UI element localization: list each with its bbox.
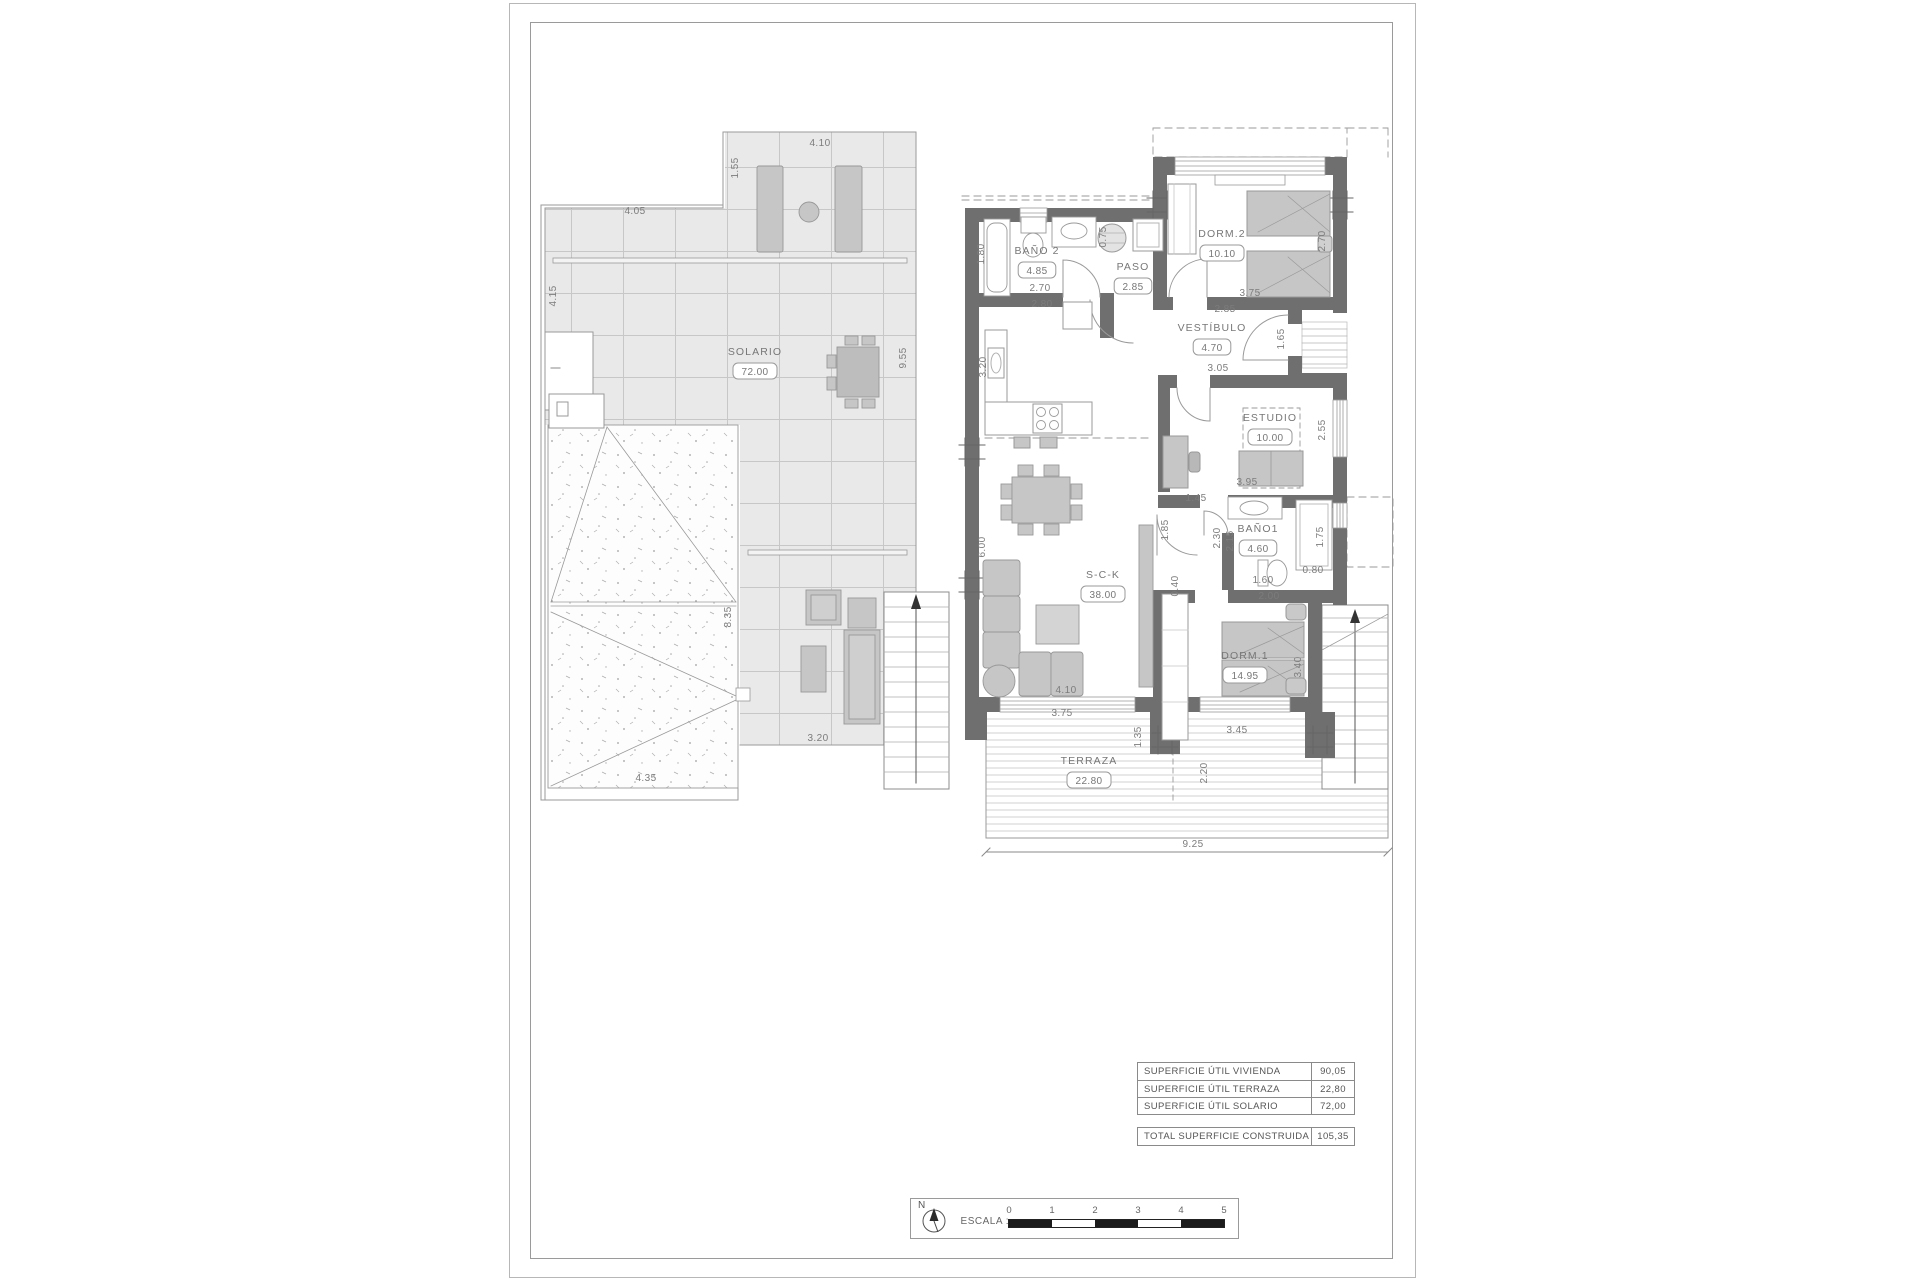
sofa: [983, 560, 1020, 596]
row-value: 105,35: [1311, 1128, 1354, 1145]
sofa: [1019, 652, 1051, 696]
bed: [1247, 191, 1330, 236]
room-area-label: 4.70: [1201, 343, 1222, 354]
dimension-label: 0.80: [1302, 565, 1323, 576]
external-staircase: [1322, 605, 1388, 789]
dimension-label: 2.85: [1214, 304, 1235, 315]
room-name-label: BAÑO1: [1237, 522, 1278, 535]
room-area-label: 4.60: [1247, 544, 1268, 555]
total-area-table: TOTAL SUPERFICIE CONSTRUIDA 105,35: [1137, 1127, 1355, 1146]
dimension-label: 6.00: [977, 536, 988, 557]
scale-tick: 2: [1092, 1205, 1097, 1216]
dimension-label: 3.75: [1239, 288, 1260, 299]
dining-table: [1012, 477, 1070, 523]
row-label: SUPERFICIE ÚTIL TERRAZA: [1138, 1084, 1311, 1095]
dimension-label: 3.20: [807, 733, 828, 744]
scale-tick: 1: [1049, 1205, 1054, 1216]
scale-tick: 3: [1135, 1205, 1140, 1216]
sideboard: [1139, 525, 1153, 687]
scale-label: ESCALA :: [953, 1216, 1009, 1227]
table-row: SUPERFICIE ÚTIL TERRAZA 22,80: [1138, 1080, 1354, 1097]
dimension-label: 1.35: [1133, 726, 1144, 747]
dimension-label: 2.20: [1199, 762, 1210, 783]
kitchen: [985, 302, 1092, 448]
room-area-label: 38.00: [1089, 590, 1116, 601]
row-value: 72,00: [1311, 1098, 1354, 1114]
stove: [1033, 404, 1062, 433]
dimension-label: 3.05: [1207, 363, 1228, 374]
wardrobe: [1168, 184, 1196, 254]
dimension-label: 3.40: [1293, 656, 1304, 677]
dimension-label: 3.95: [1236, 477, 1257, 488]
dimension-label: 1.80: [976, 243, 987, 264]
row-label: SUPERFICIE ÚTIL VIVIENDA: [1138, 1066, 1311, 1077]
door-estudio: [1177, 388, 1210, 421]
row-label: SUPERFICIE ÚTIL SOLARIO: [1138, 1101, 1311, 1112]
scale-segment: [1181, 1220, 1224, 1227]
door-dorm2: [1169, 259, 1207, 297]
roof-stipple-area: [548, 425, 738, 788]
room-name-label: TERRAZA: [1061, 755, 1118, 767]
dimension-label: 1.65: [1276, 328, 1287, 349]
toilet-tank: [1021, 217, 1046, 233]
living-dining-furniture: [983, 465, 1153, 697]
room-name-label: SOLARIO: [728, 346, 782, 358]
room-name-label: ESTUDIO: [1243, 412, 1297, 424]
dimension-label: 2.55: [1317, 419, 1328, 440]
dimension-label: 1.60: [1252, 575, 1273, 586]
pouf: [983, 665, 1015, 697]
desk: [1163, 436, 1188, 488]
solario-roof-plan: [541, 132, 949, 800]
room-name-label: DORM.1: [1221, 650, 1268, 662]
entry-steps: [1302, 322, 1347, 368]
solario-staircase: [884, 592, 949, 789]
dimension-label: 0.75: [1098, 226, 1109, 247]
wardrobe: [1162, 594, 1188, 740]
dimension-label: 2.15: [1225, 530, 1236, 551]
scale-segment: [1009, 1220, 1052, 1227]
service-box-inner: [557, 402, 568, 416]
shower: [1296, 500, 1332, 570]
nightstand: [1286, 604, 1306, 620]
room-area-label: 22.80: [1075, 776, 1102, 787]
scale-tick: 0: [1006, 1205, 1011, 1216]
dimension-label: 4.15: [548, 285, 559, 306]
room-name-label: S-C-K: [1086, 569, 1120, 581]
dimension-label: 4.10: [809, 138, 830, 149]
scale-segment: [1138, 1220, 1181, 1227]
table-row: SUPERFICIE ÚTIL VIVIENDA 90,05: [1138, 1063, 1354, 1080]
scale-tick: 4: [1178, 1205, 1183, 1216]
dorm2-furniture: [1168, 184, 1332, 297]
room-area-label: 10.00: [1256, 433, 1283, 444]
dimension-label: 2.00: [1258, 591, 1279, 602]
scale-segment: [1095, 1220, 1138, 1227]
row-label: TOTAL SUPERFICIE CONSTRUIDA: [1138, 1131, 1311, 1142]
scale-tick: 5: [1221, 1205, 1226, 1216]
dimension-label: 1.85: [1160, 519, 1171, 540]
room-area-label: 2.85: [1122, 282, 1143, 293]
dimension-label: 1.45: [1185, 493, 1206, 504]
dimension-label: 8.35: [723, 606, 734, 627]
nightstand: [1286, 678, 1306, 694]
dimension-label: 3.45: [1226, 725, 1247, 736]
dimension-label: 3.75: [1051, 708, 1072, 719]
dimension-label: 2.70: [1029, 283, 1050, 294]
page-canvas: 4.101.554.054.159.558.354.353.201.802.70…: [0, 0, 1920, 1280]
washbasin: [1061, 223, 1087, 239]
pergola-beam: [748, 550, 907, 555]
row-value: 90,05: [1311, 1063, 1354, 1080]
dimension-label: 1.75: [1315, 526, 1326, 547]
room-name-label: VESTÍBULO: [1178, 321, 1247, 334]
dimension-label: 9.25: [1182, 839, 1203, 850]
stool: [1014, 437, 1030, 448]
row-value: 22,80: [1311, 1081, 1354, 1097]
dimension-label: 4.05: [624, 206, 645, 217]
washbasin: [1240, 501, 1268, 515]
stool: [1040, 437, 1057, 448]
scale-segment: [1052, 1220, 1095, 1227]
room-name-label: PASO: [1117, 261, 1150, 273]
dimension-label: 9.55: [898, 347, 909, 368]
dimension-label: 2.80: [1031, 299, 1052, 310]
dimension-label: 0.40: [1170, 575, 1181, 596]
scale-bar-box: N ESCALA : 012345: [910, 1198, 1239, 1239]
north-compass-icon: [913, 1199, 953, 1237]
table-row: TOTAL SUPERFICIE CONSTRUIDA 105,35: [1138, 1128, 1354, 1145]
floor-plan-drawing: 4.101.554.054.159.558.354.353.201.802.70…: [0, 0, 1920, 1280]
surface-areas-table: SUPERFICIE ÚTIL VIVIENDA 90,05 SUPERFICI…: [1137, 1062, 1355, 1115]
kitchen-cabinet: [1063, 302, 1092, 329]
room-area-label: 4.85: [1026, 266, 1047, 277]
room-area-label: 10.10: [1208, 249, 1235, 260]
roof-vent: [736, 688, 750, 701]
coffee-table: [1036, 605, 1079, 644]
dimension-label: 1.55: [730, 157, 741, 178]
pergola-beam: [553, 258, 907, 263]
room-name-label: DORM.2: [1198, 228, 1245, 240]
dimension-label: 4.35: [635, 773, 656, 784]
door-bano2: [1063, 260, 1100, 297]
dimension-label: 2.70: [1317, 230, 1328, 251]
room-name-label: BAÑO 2: [1014, 244, 1059, 257]
dimension-label: 4.10: [1055, 685, 1076, 696]
dimension-label: 2.30: [1212, 527, 1223, 548]
scale-segments: [1008, 1219, 1225, 1228]
dimension-label: 3.20: [978, 356, 989, 377]
room-area-label: 14.95: [1231, 671, 1258, 682]
desk-chair: [1189, 452, 1200, 472]
room-area-label: 72.00: [741, 367, 768, 378]
table-row: SUPERFICIE ÚTIL SOLARIO 72,00: [1138, 1097, 1354, 1114]
